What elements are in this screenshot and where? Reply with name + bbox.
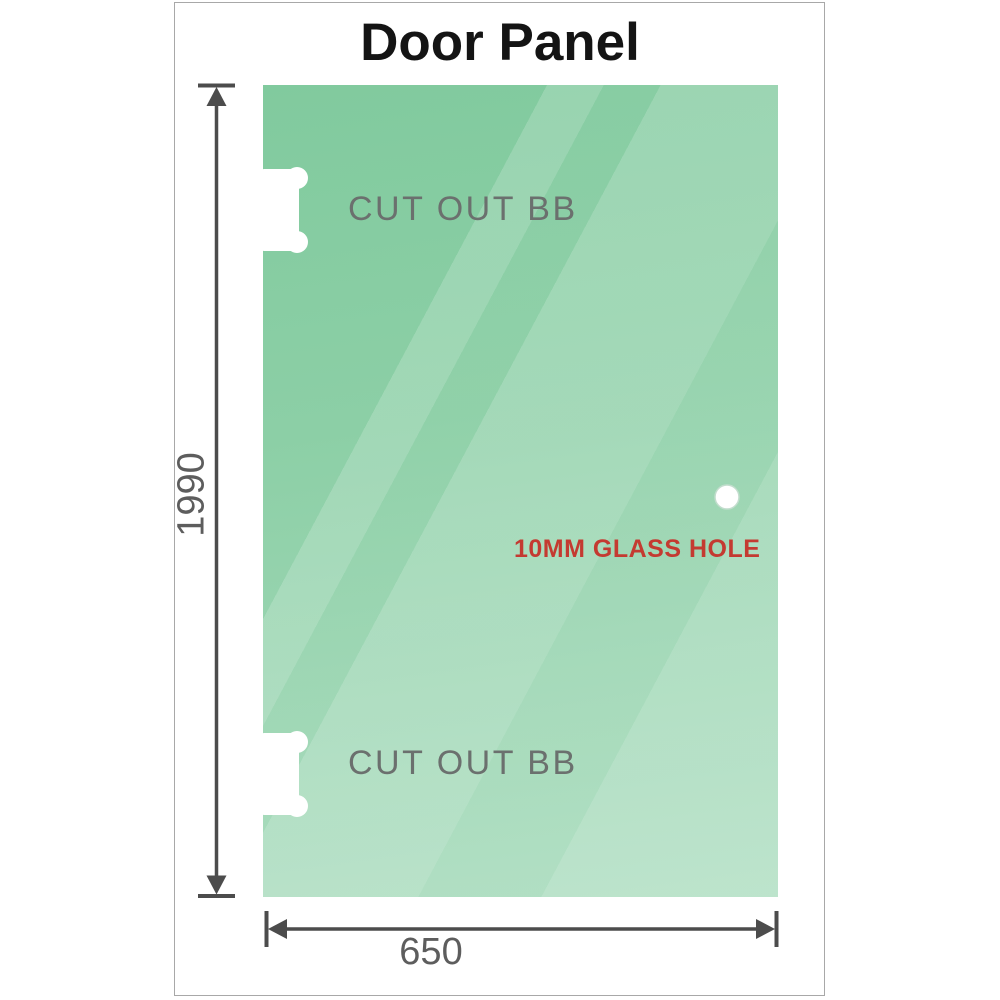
- width-dimension-arrow: [267, 911, 777, 947]
- cutout-body: [261, 169, 299, 251]
- cutout-label-top: CUT OUT BB: [348, 190, 578, 229]
- diagram-overlay: [0, 0, 1000, 1000]
- cutout-body: [261, 733, 299, 815]
- hinge-cutout-bottom: [261, 731, 308, 817]
- arrowhead-down-icon: [207, 876, 227, 895]
- height-dimension-value: 1990: [171, 445, 214, 545]
- arrowhead-up-icon: [207, 87, 227, 106]
- cutout-label-bottom: CUT OUT BB: [348, 744, 578, 783]
- glass-hole-label: 10MM GLASS HOLE: [514, 535, 760, 564]
- arrowhead-right-icon: [756, 919, 775, 939]
- width-dimension-value: 650: [381, 931, 481, 974]
- hinge-cutout-top: [261, 167, 308, 253]
- arrowhead-left-icon: [268, 919, 287, 939]
- glass-hole: [715, 485, 739, 509]
